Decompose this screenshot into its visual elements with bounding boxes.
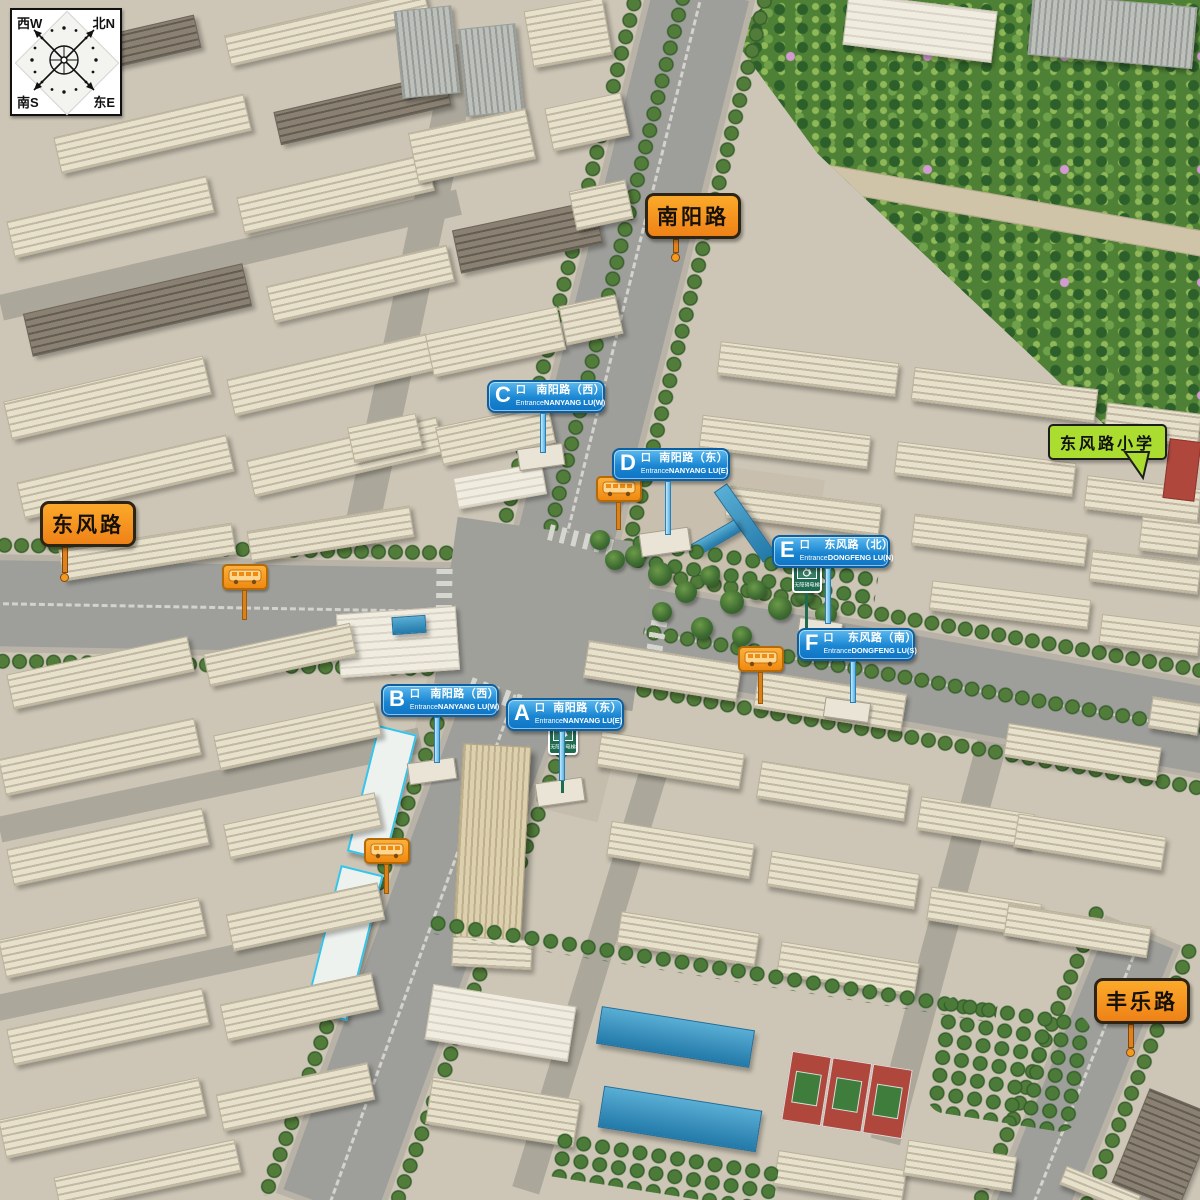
tree (732, 626, 752, 646)
building-block (458, 23, 525, 117)
building-block (1088, 549, 1200, 594)
compass-label-east: 东E (93, 92, 115, 111)
entrance-letter: A (514, 702, 530, 726)
entrance-letter: D (620, 452, 636, 476)
entrance-en-label: Entrance (516, 400, 544, 409)
building-block (53, 1139, 241, 1200)
building-block (1162, 438, 1200, 501)
entrance-letter: C (495, 384, 511, 408)
sign-pole (384, 864, 389, 894)
road-label-nanyang: 南阳路 (645, 193, 741, 262)
bus-stop-sign (738, 646, 784, 704)
entrance-kou: 口 (535, 703, 545, 716)
park-path (694, 142, 1200, 269)
entrance-street-cn: 东风路（南） (848, 632, 917, 646)
tree (648, 562, 672, 586)
compass-label-south: 南S (17, 92, 39, 111)
entrance-letter: B (389, 688, 405, 712)
compass-rose-icon: 西W 北N 南S 东E (10, 8, 122, 116)
sign-pole (665, 481, 671, 535)
tree (652, 602, 672, 622)
entrance-kou: 口 (823, 633, 833, 646)
entrance-street-cn: 南阳路（西） (430, 688, 499, 702)
label-pin (62, 547, 68, 573)
building-block (524, 0, 613, 69)
bus-stop-sign (364, 838, 410, 894)
entrance-street-en: NANYANG LU(E) (669, 466, 728, 475)
compass-label-north: 北N (93, 13, 115, 32)
entrance-sign-b: B 口南阳路（西） EntranceNANYANG LU(W) (381, 684, 499, 763)
entrance-kou: 口 (641, 453, 651, 466)
entrance-en-label: Entrance (535, 718, 563, 727)
entrance-sign-c: C 口南阳路（西） EntranceNANYANG LU(W) (487, 380, 605, 453)
building-block (391, 615, 426, 635)
road-label-text: 东风路 (40, 501, 136, 547)
entrance-street-en: DONGFENG LU(N) (828, 553, 894, 562)
label-pin (673, 239, 679, 253)
entrance-en-label: Entrance (823, 648, 851, 657)
building-block (394, 5, 461, 99)
entrance-street-en: NANYANG LU(W) (438, 702, 499, 711)
building-block (0, 1077, 207, 1159)
building-block (1013, 813, 1166, 870)
sign-pole (540, 413, 546, 453)
sign-pole (242, 590, 247, 620)
tree (691, 617, 713, 639)
entrance-letter: E (780, 539, 795, 563)
building-block (766, 850, 920, 909)
entrance-en-label: Entrance (641, 468, 669, 477)
sign-pole (434, 717, 440, 763)
entrance-kou: 口 (410, 689, 420, 702)
sign-pole (850, 661, 856, 703)
entrance-street-cn: 南阳路（东） (553, 702, 622, 716)
tree (720, 590, 744, 614)
tree (590, 530, 610, 550)
poi-label-school: 东风路小学 (1048, 424, 1167, 460)
label-pin-dot (60, 573, 69, 582)
entrance-street-cn: 东风路（北） (825, 539, 894, 553)
building-block (911, 513, 1089, 566)
bus-icon (222, 564, 268, 590)
bus-stop-sign (222, 564, 268, 620)
building-block (266, 245, 455, 324)
entrance-street-en: DONGFENG LU(S) (851, 646, 916, 655)
building-block (773, 1150, 907, 1200)
sign-pole (559, 731, 565, 781)
building-block (596, 1006, 755, 1068)
entrance-sign-e: E 口东风路（北） EntranceDONGFENG LU(N) (772, 535, 890, 624)
entrance-street-cn: 南阳路（西） (536, 384, 605, 398)
building-block (717, 341, 900, 397)
road-label-text: 南阳路 (645, 193, 741, 239)
road-label-text: 丰乐路 (1094, 978, 1190, 1024)
entrance-kou: 口 (516, 385, 526, 398)
entrance-en-label: Entrance (410, 704, 438, 713)
tree (675, 581, 697, 603)
entrance-sign-a: A 口南阳路（东） EntranceNANYANG LU(E) (506, 698, 624, 781)
label-pin (1128, 1024, 1134, 1048)
label-pin-dot (1126, 1048, 1135, 1057)
entrance-street-en: NANYANG LU(E) (563, 716, 622, 725)
building-block (3, 355, 212, 440)
label-tail (1123, 451, 1153, 481)
bus-icon (364, 838, 410, 864)
entrance-en-label: Entrance (800, 555, 828, 564)
entrance-street-en: NANYANG LU(W) (544, 398, 605, 407)
compass-label-west: 西W (17, 13, 42, 32)
road-label-fengle: 丰乐路 (1094, 978, 1190, 1057)
bus-icon (738, 646, 784, 672)
entrance-street-cn: 南阳路（东） (659, 452, 728, 466)
entrance-sign-d: D 口南阳路（东） EntranceNANYANG LU(E) (612, 448, 730, 535)
tree (605, 550, 625, 570)
tree (746, 580, 766, 600)
label-pin-dot (671, 253, 680, 262)
entrance-sign-f: F 口东风路（南） EntranceDONGFENG LU(S) (797, 628, 915, 703)
sign-pole (758, 672, 763, 704)
building-block (6, 175, 214, 258)
entrance-letter: F (805, 632, 818, 656)
building-block (408, 108, 536, 184)
tree (700, 566, 720, 586)
sign-pole (825, 568, 831, 624)
building-block (1138, 516, 1200, 557)
road-label-dongfeng: 东风路 (40, 501, 136, 582)
tree-cluster (925, 994, 1094, 1134)
city-3d-map: 西W 北N 南S 东E 南阳路 东风路 丰乐路 东风路小学 C 口南阳路（西） … (0, 0, 1200, 1200)
building-block (756, 761, 910, 822)
entrance-kou: 口 (800, 540, 810, 553)
